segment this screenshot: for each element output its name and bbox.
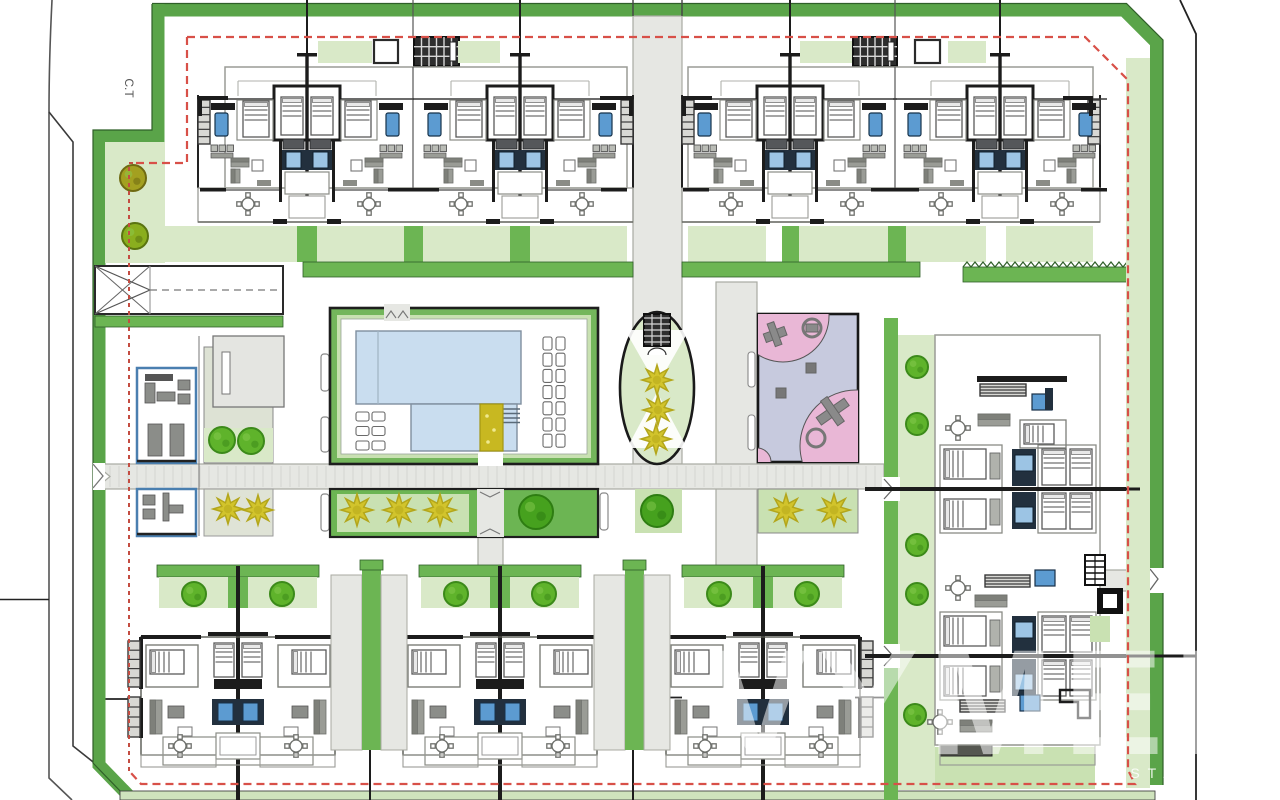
svg-text:C.T: C.T	[122, 78, 136, 98]
svg-text:VYMER: VYMER	[708, 618, 1280, 786]
svg-text:ESTATES: ESTATES	[1113, 765, 1231, 781]
